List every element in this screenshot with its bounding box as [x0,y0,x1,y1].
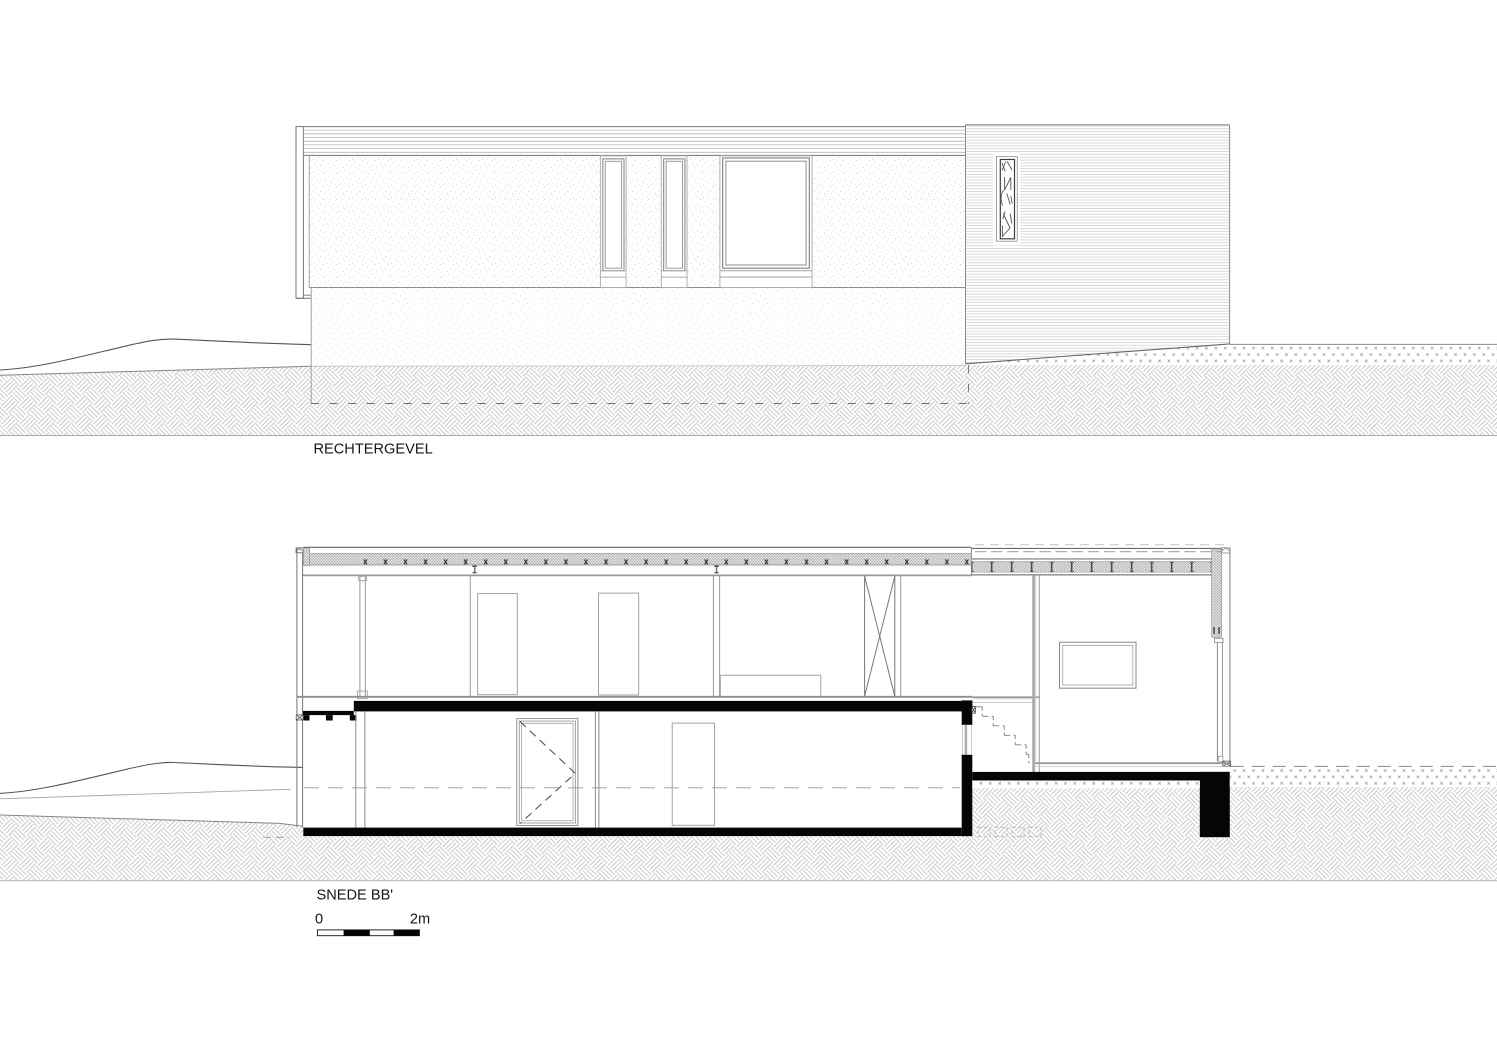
svg-text:SNEDE BB': SNEDE BB' [317,888,394,904]
svg-text:2m: 2m [410,911,430,927]
svg-text:RECHTERGEVEL: RECHTERGEVEL [314,441,433,457]
svg-text:0: 0 [315,911,323,927]
